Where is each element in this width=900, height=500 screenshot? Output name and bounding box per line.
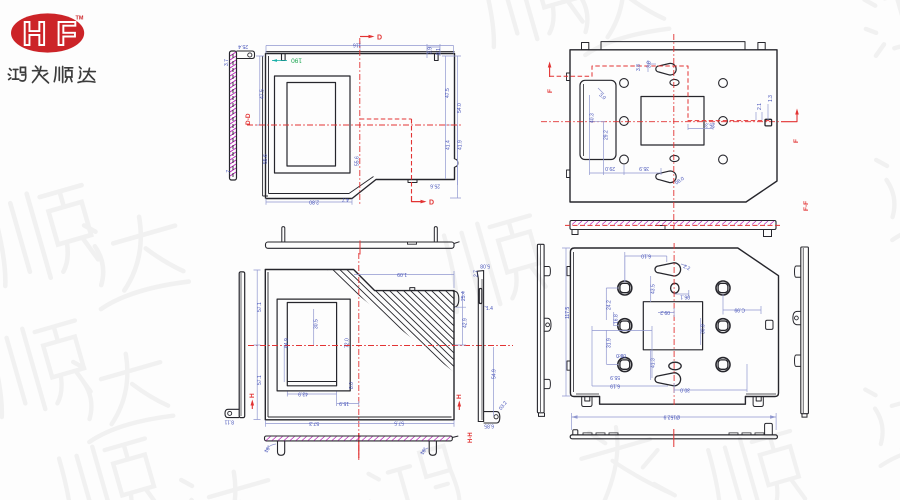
svg-text:2.80: 2.80: [309, 199, 319, 205]
svg-text:29.0: 29.0: [605, 165, 615, 171]
svg-text:57.5: 57.5: [394, 419, 404, 425]
svg-text:54.0: 54.0: [457, 103, 463, 113]
svg-text:54.9: 54.9: [492, 369, 498, 379]
svg-text:Ø152.9: Ø152.9: [663, 414, 680, 420]
svg-text:3.8: 3.8: [636, 64, 642, 71]
svg-text:09.2: 09.2: [660, 309, 670, 315]
svg-text:25.4: 25.4: [461, 291, 467, 301]
svg-text:43.9: 43.9: [298, 390, 308, 396]
svg-text:D: D: [429, 200, 434, 207]
svg-text:57.1: 57.1: [257, 375, 263, 385]
svg-text:35.9: 35.9: [639, 165, 649, 171]
svg-text:H-H: H-H: [468, 432, 474, 443]
svg-text:TM: TM: [76, 16, 84, 22]
svg-text:57.3: 57.3: [309, 420, 319, 426]
svg-text:H: H: [249, 393, 256, 398]
svg-text:30.0: 30.0: [680, 386, 690, 392]
svg-text:30.9: 30.9: [701, 324, 707, 334]
svg-text:H: H: [456, 394, 463, 399]
svg-text:C.99: C.99: [734, 307, 745, 313]
svg-text:29.2: 29.2: [604, 130, 610, 140]
svg-text:42.9: 42.9: [462, 318, 468, 328]
svg-text:40.3: 40.3: [590, 113, 596, 123]
svg-text:24.2: 24.2: [606, 300, 612, 310]
svg-text:D-D: D-D: [245, 113, 252, 125]
svg-text:F-F: F-F: [803, 201, 810, 211]
svg-text:15.9: 15.9: [339, 400, 349, 406]
svg-text:1.09: 1.09: [397, 271, 407, 277]
svg-text:6.85: 6.85: [484, 423, 494, 429]
svg-text:1.3: 1.3: [768, 95, 774, 102]
svg-text:190: 190: [291, 57, 302, 64]
svg-text:5.08: 5.08: [480, 263, 490, 269]
svg-text:8.0: 8.0: [349, 382, 355, 389]
svg-text:06.1: 06.1: [680, 294, 690, 300]
svg-text:2.1: 2.1: [757, 103, 763, 110]
svg-text:57.1: 57.1: [257, 302, 263, 312]
svg-text:55.6: 55.6: [263, 154, 269, 164]
svg-text:31.9: 31.9: [606, 338, 612, 348]
svg-text:47.5: 47.5: [260, 89, 266, 99]
svg-text:41.9: 41.9: [458, 140, 464, 150]
svg-text:25.3: 25.3: [705, 122, 715, 128]
svg-text:47.5: 47.5: [445, 88, 451, 98]
svg-text:F: F: [547, 89, 554, 93]
svg-text:D: D: [377, 35, 382, 42]
svg-text:6.19: 6.19: [610, 382, 620, 388]
svg-text:55.9: 55.9: [610, 374, 620, 380]
svg-text:F: F: [793, 139, 800, 143]
svg-text:25.6: 25.6: [430, 183, 440, 189]
svg-text:08.0: 08.0: [616, 352, 626, 358]
svg-text:64.9: 64.9: [284, 338, 290, 348]
svg-text:1.4: 1.4: [486, 306, 493, 312]
svg-text:3.8: 3.8: [647, 61, 653, 68]
svg-text:41.4: 41.4: [446, 140, 452, 150]
svg-text:16.8: 16.8: [614, 314, 620, 324]
svg-text:117.5: 117.5: [565, 307, 571, 319]
svg-text:25.4: 25.4: [238, 43, 248, 49]
svg-text:3.7: 3.7: [224, 59, 230, 66]
svg-text:9.1: 9.1: [436, 48, 442, 55]
svg-text:8.11: 8.11: [224, 418, 234, 424]
svg-text:2.7: 2.7: [474, 270, 480, 277]
svg-text:30.5: 30.5: [314, 319, 320, 329]
svg-text:43.5: 43.5: [651, 284, 657, 294]
svg-text:6.10: 6.10: [641, 252, 651, 258]
svg-text:72.0: 72.0: [345, 338, 351, 348]
svg-text:.7: .7: [226, 170, 232, 174]
svg-text:3.9: 3.9: [428, 47, 434, 54]
svg-text:41.3: 41.3: [651, 358, 657, 368]
svg-text:4.7: 4.7: [342, 196, 349, 202]
